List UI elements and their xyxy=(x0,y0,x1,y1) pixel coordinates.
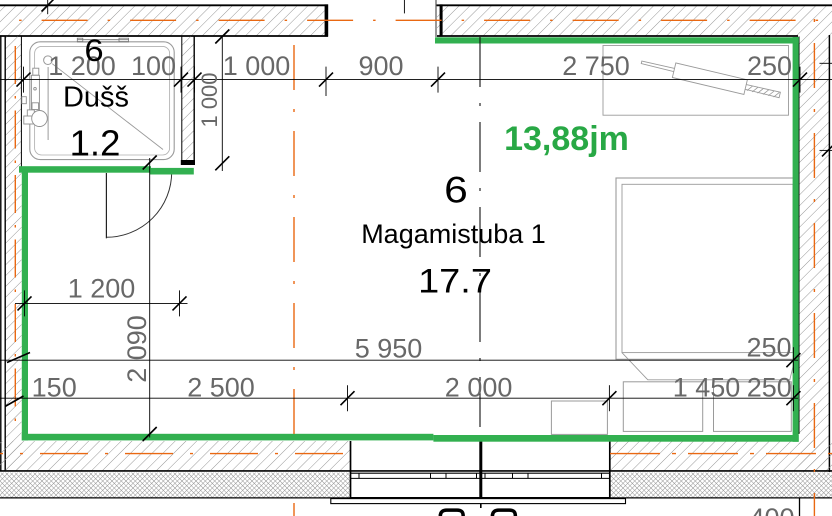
svg-text:2 000: 2 000 xyxy=(445,372,513,402)
svg-text:250: 250 xyxy=(746,332,791,362)
svg-text:17.7: 17.7 xyxy=(418,261,492,300)
svg-text:2 750: 2 750 xyxy=(562,51,630,81)
svg-text:1 200: 1 200 xyxy=(48,51,116,81)
svg-text:150: 150 xyxy=(32,372,77,402)
svg-text:1 450: 1 450 xyxy=(673,372,741,402)
svg-text:250: 250 xyxy=(747,51,792,81)
svg-text:6: 6 xyxy=(84,33,103,68)
svg-text:250: 250 xyxy=(747,372,792,402)
svg-text:2 500: 2 500 xyxy=(187,372,255,402)
svg-text:13,88jm: 13,88jm xyxy=(504,120,629,158)
svg-text:900: 900 xyxy=(358,51,403,81)
svg-text:2 090: 2 090 xyxy=(122,315,152,383)
svg-text:5 950: 5 950 xyxy=(355,334,423,364)
svg-text:1 000: 1 000 xyxy=(197,72,222,127)
svg-text:1 200: 1 200 xyxy=(68,274,136,304)
svg-text:400: 400 xyxy=(749,503,794,516)
svg-text:6: 6 xyxy=(444,170,468,211)
svg-text:1 000: 1 000 xyxy=(223,51,291,81)
svg-text:Dušš: Dušš xyxy=(63,82,129,114)
svg-text:Magamistuba 1: Magamistuba 1 xyxy=(361,219,546,249)
svg-text:100: 100 xyxy=(131,51,176,81)
svg-text:1.2: 1.2 xyxy=(70,122,121,163)
